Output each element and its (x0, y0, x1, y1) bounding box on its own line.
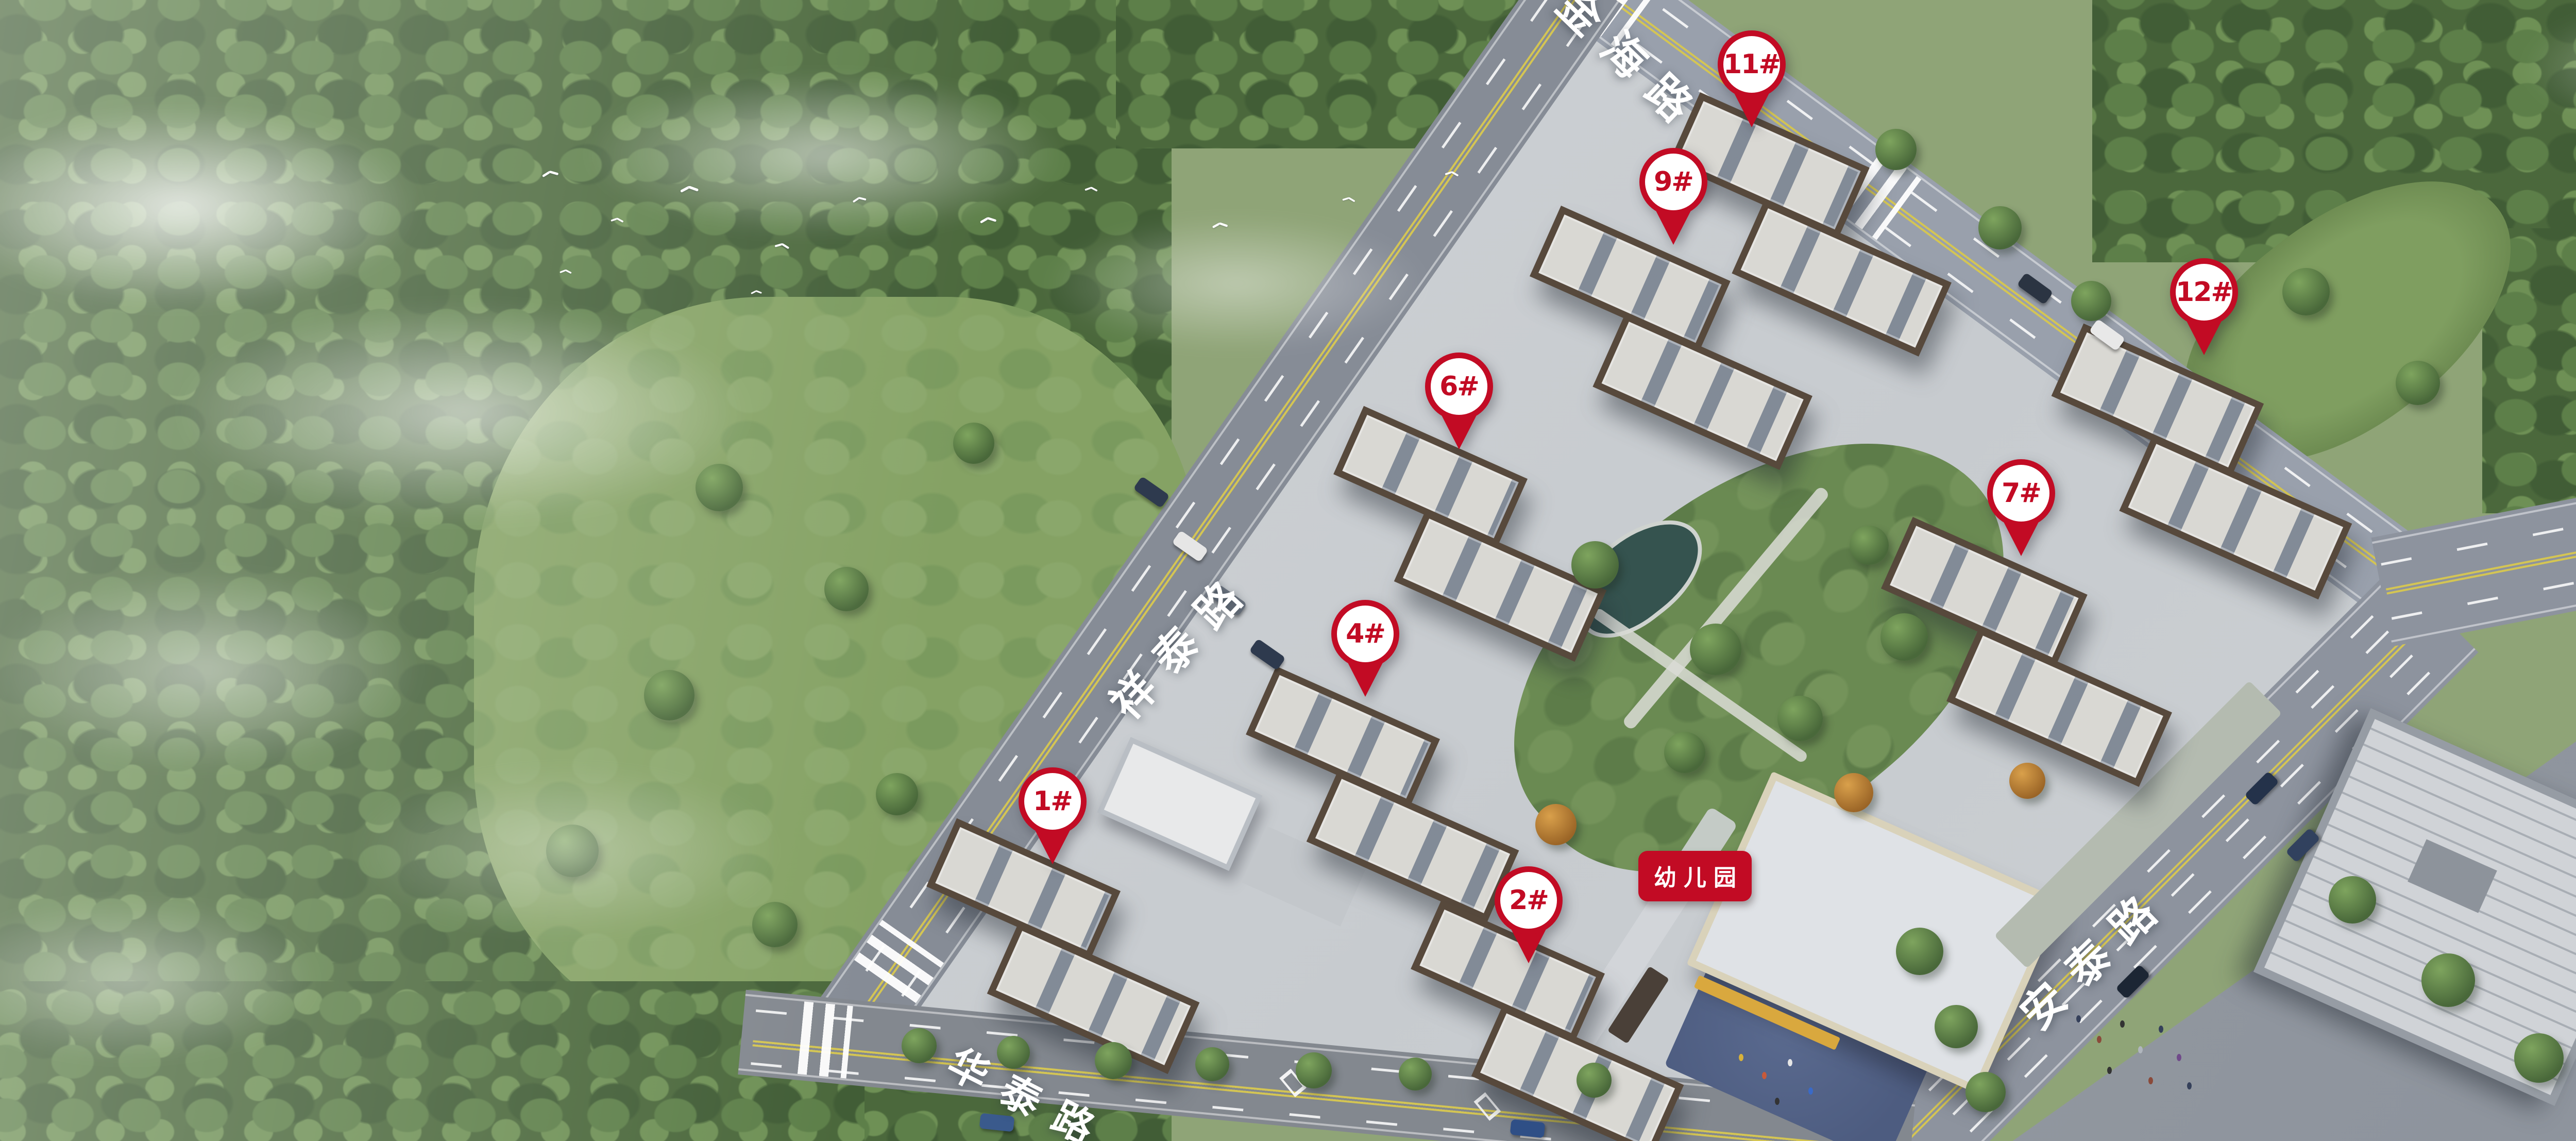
pin-circle: 12# (2170, 258, 2238, 326)
autumn-tree (2009, 763, 2045, 799)
cloud (155, 294, 773, 531)
marker-pin-9[interactable]: 9# (1639, 148, 1707, 216)
tree (1690, 624, 1741, 675)
pin-circle: 4# (1331, 600, 1399, 668)
tree (1880, 613, 1928, 661)
road-centerline (2386, 504, 2576, 594)
tree (1399, 1058, 1432, 1090)
tree (1965, 1072, 2006, 1112)
autumn-tree (1535, 804, 1577, 845)
pin-circle: 9# (1639, 148, 1707, 216)
autumn-tree (1834, 773, 1873, 812)
tree (1571, 541, 1619, 589)
tree (2282, 268, 2330, 315)
tree (1875, 129, 1917, 170)
tree (1664, 732, 1705, 773)
bird-icon (751, 290, 762, 295)
bird-icon (560, 269, 572, 274)
pin-label: 1# (1033, 786, 1072, 817)
pin-label: 2# (1509, 885, 1548, 916)
tree (1935, 1005, 1978, 1048)
pin-circle: 1# (1019, 767, 1087, 835)
pin-label: 12# (2176, 277, 2232, 308)
tree (1296, 1052, 1332, 1088)
cloud (1030, 211, 1443, 356)
tree (1896, 928, 1943, 975)
marker-pin-1[interactable]: 1# (1019, 767, 1087, 835)
pin-label: 7# (2002, 478, 2041, 509)
tree (1850, 526, 1889, 565)
pin-circle: 11# (1718, 30, 1786, 98)
pin-label: 9# (1654, 166, 1693, 197)
tree (2329, 876, 2376, 924)
pin-circle: 7# (1987, 459, 2055, 527)
bird-icon (1084, 186, 1098, 192)
tree (2514, 1033, 2564, 1083)
cloud (335, 758, 799, 943)
aerial-rendering: 金海路 祥泰路 安泰路 华泰路 幼儿园 1# 2# 4# 6# 7# 9# 11… (0, 0, 2576, 1141)
pin-circle: 6# (1425, 353, 1493, 421)
marker-pin-4[interactable]: 4# (1331, 600, 1399, 668)
pin-label: 4# (1346, 618, 1385, 649)
tree (2071, 281, 2111, 321)
marker-pin-2[interactable]: 2# (1495, 866, 1563, 934)
bird-icon (611, 217, 624, 223)
marker-pin-7[interactable]: 7# (1987, 459, 2055, 527)
playground-kids (1731, 1046, 1834, 1118)
marker-pin-6[interactable]: 6# (1425, 353, 1493, 421)
marker-pin-11[interactable]: 11# (1718, 30, 1786, 98)
tree (2396, 361, 2440, 405)
bird-icon (1342, 196, 1355, 203)
tree (2421, 953, 2475, 1007)
tree (1978, 206, 2022, 249)
cloud (567, 67, 1082, 242)
tree (1777, 696, 1823, 741)
plaza-crowd (2071, 1005, 2205, 1098)
marker-pin-12[interactable]: 12# (2170, 258, 2238, 326)
pin-label: 11# (1723, 49, 1780, 80)
tree (1577, 1063, 1612, 1098)
kindergarten-badge: 幼儿园 (1638, 851, 1752, 901)
lane-marking (2392, 532, 2576, 619)
pin-circle: 2# (1495, 866, 1563, 934)
pin-label: 6# (1439, 371, 1479, 402)
bird-icon (680, 185, 699, 193)
